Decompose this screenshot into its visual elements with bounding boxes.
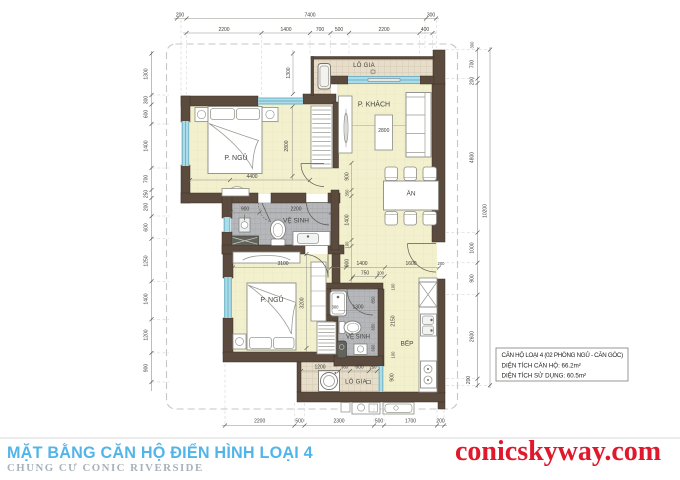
svg-text:2200: 2200 xyxy=(290,206,301,212)
svg-text:100: 100 xyxy=(345,241,350,249)
svg-text:600: 600 xyxy=(355,365,364,371)
svg-text:conicskyway.com: conicskyway.com xyxy=(455,436,661,467)
svg-text:400: 400 xyxy=(421,27,430,33)
svg-text:P. NGỦ: P. NGỦ xyxy=(260,295,283,304)
svg-text:P. KHÁCH: P. KHÁCH xyxy=(358,100,390,109)
svg-text:CĂN HỘ LOẠI 4 (02 PHÒNG NGỦ -: CĂN HỘ LOẠI 4 (02 PHÒNG NGỦ - CĂN GÓC) xyxy=(502,352,624,359)
svg-text:300: 300 xyxy=(470,41,475,49)
svg-text:1200: 1200 xyxy=(144,329,150,340)
svg-text:7400: 7400 xyxy=(304,13,315,19)
svg-text:2150: 2150 xyxy=(391,315,397,326)
svg-text:850: 850 xyxy=(371,296,376,304)
svg-text:1300: 1300 xyxy=(286,67,292,78)
svg-text:3200: 3200 xyxy=(300,297,306,308)
svg-text:700: 700 xyxy=(470,60,476,69)
svg-text:LÔ GIA: LÔ GIA xyxy=(353,62,375,69)
svg-text:900: 900 xyxy=(241,206,250,212)
svg-text:200: 200 xyxy=(377,270,385,275)
svg-text:3100: 3100 xyxy=(277,261,288,267)
svg-text:2600: 2600 xyxy=(470,331,476,342)
svg-text:1700: 1700 xyxy=(405,419,416,425)
svg-text:10200: 10200 xyxy=(483,204,489,218)
svg-text:VỆ SINH: VỆ SINH xyxy=(283,216,309,225)
svg-text:2800: 2800 xyxy=(378,128,389,134)
svg-text:350: 350 xyxy=(345,189,350,197)
svg-text:2200: 2200 xyxy=(378,27,389,33)
svg-text:VỆ SINH: VỆ SINH xyxy=(346,333,370,341)
svg-text:200: 200 xyxy=(144,203,150,212)
svg-text:1600: 1600 xyxy=(405,261,416,267)
svg-text:900: 900 xyxy=(345,172,351,181)
svg-text:1400: 1400 xyxy=(280,27,291,33)
svg-text:1400: 1400 xyxy=(144,293,150,304)
svg-text:500: 500 xyxy=(375,419,384,425)
svg-text:600: 600 xyxy=(371,344,376,352)
svg-text:100: 100 xyxy=(391,351,396,359)
svg-text:1400: 1400 xyxy=(144,140,150,151)
svg-text:900: 900 xyxy=(470,274,476,283)
svg-text:1250: 1250 xyxy=(144,255,150,266)
svg-text:1000: 1000 xyxy=(470,242,476,253)
svg-text:200: 200 xyxy=(466,376,472,385)
svg-text:MẶT BẰNG CĂN HỘ ĐIỂN HÌNH LOẠI: MẶT BẰNG CĂN HỘ ĐIỂN HÌNH LOẠI 4 xyxy=(7,443,313,462)
svg-text:1400: 1400 xyxy=(345,214,351,225)
svg-text:900: 900 xyxy=(345,259,351,268)
svg-text:500: 500 xyxy=(335,27,344,33)
svg-text:CHUNG CƯ CONIC RIVERSIDE: CHUNG CƯ CONIC RIVERSIDE xyxy=(7,462,204,474)
svg-text:2800: 2800 xyxy=(284,140,290,151)
svg-text:200: 200 xyxy=(436,419,445,425)
svg-text:600: 600 xyxy=(144,223,150,232)
svg-text:200: 200 xyxy=(470,77,476,86)
svg-text:1300: 1300 xyxy=(352,304,363,310)
svg-text:2300: 2300 xyxy=(333,419,344,425)
svg-text:700: 700 xyxy=(144,175,150,184)
svg-text:700: 700 xyxy=(316,27,325,33)
svg-text:900: 900 xyxy=(144,364,150,373)
svg-text:250: 250 xyxy=(144,190,150,199)
svg-text:200: 200 xyxy=(176,13,185,19)
svg-text:P. NGỦ: P. NGỦ xyxy=(224,153,247,162)
svg-text:DIỆN TÍCH CĂN HỘ: 66.2m²: DIỆN TÍCH CĂN HỘ: 66.2m² xyxy=(502,361,581,369)
svg-text:LÔ GIA: LÔ GIA xyxy=(345,379,367,386)
svg-text:1200: 1200 xyxy=(314,365,325,371)
svg-text:4800: 4800 xyxy=(470,152,476,163)
svg-text:360: 360 xyxy=(341,365,349,370)
svg-text:2200: 2200 xyxy=(254,419,265,425)
svg-text:4400: 4400 xyxy=(246,174,257,180)
svg-text:300: 300 xyxy=(332,304,340,309)
svg-text:250: 250 xyxy=(370,365,378,370)
svg-text:1400: 1400 xyxy=(356,261,367,267)
svg-text:1300: 1300 xyxy=(144,68,150,79)
svg-text:100: 100 xyxy=(391,283,396,291)
svg-text:750: 750 xyxy=(361,270,370,276)
svg-text:200: 200 xyxy=(438,261,446,266)
svg-text:500: 500 xyxy=(295,419,304,425)
svg-text:ĂN: ĂN xyxy=(406,189,415,198)
svg-text:300: 300 xyxy=(144,96,150,105)
svg-text:650: 650 xyxy=(371,323,376,331)
svg-text:2200: 2200 xyxy=(218,27,229,33)
svg-text:300: 300 xyxy=(427,13,436,19)
svg-text:600: 600 xyxy=(144,110,150,119)
svg-text:DIỆN TÍCH SỬ DỤNG: 60.5m²: DIỆN TÍCH SỬ DỤNG: 60.5m² xyxy=(502,371,587,379)
svg-text:900: 900 xyxy=(390,373,396,382)
